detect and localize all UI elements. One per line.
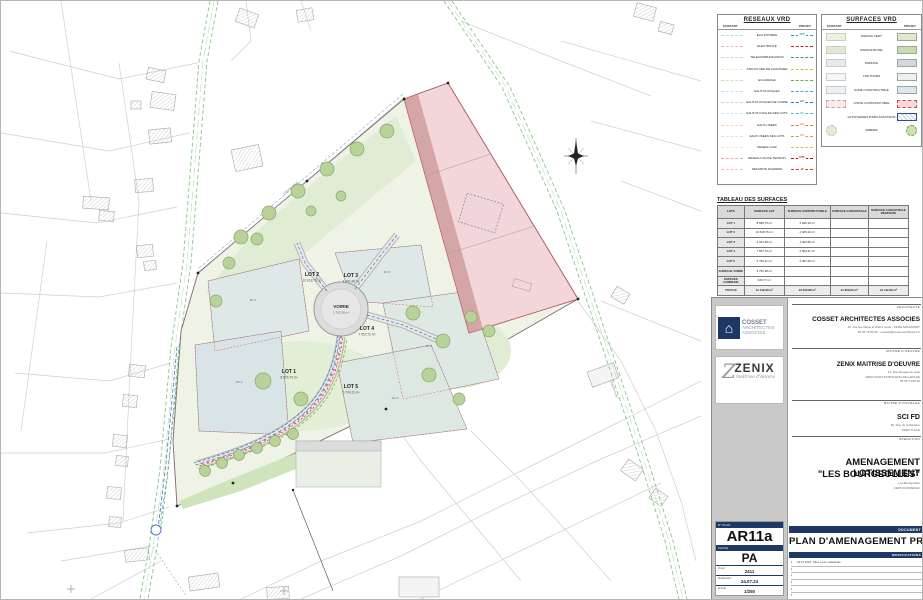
- swatch-projet: [791, 91, 813, 92]
- table-cell: LOT 5: [718, 257, 745, 267]
- table-cell: 646,77 m²: [744, 276, 784, 286]
- moe-contact: 05 55 74 68 40: [791, 379, 920, 383]
- legend-label: EAUX USEES DES LOTS: [743, 135, 791, 138]
- swatch-tag: BI: [800, 169, 805, 172]
- legend-label: EAUX PLUVIALES DES LOTS: [743, 112, 791, 115]
- zone-label: ZC 4: [426, 344, 433, 348]
- operation-address-2: 19270 DONZENAC: [791, 486, 920, 490]
- legend-row: ECLAIRAGE: [718, 75, 816, 86]
- swatch-tag: EP: [799, 101, 804, 104]
- table-cell: [830, 276, 868, 286]
- drawing-sheet: LOT 1 8 595,75 m² LOT 2 10 618,75 m² LOT…: [0, 0, 923, 600]
- swatch-projet: [791, 69, 813, 70]
- lot-area: 5 794,11 m²: [343, 391, 360, 395]
- moa-address-1: 38, Rue de la Barrière: [791, 423, 920, 427]
- table-title: TABLEAU DES SURFACES: [717, 197, 909, 203]
- legend-row: EAUX PLUVIALES DE VOIRIEEP: [718, 97, 816, 108]
- table-header-cell: LOTS: [718, 206, 745, 219]
- moa-name: SCI FD: [791, 414, 920, 421]
- legend-label: EAU POTABLE: [743, 34, 791, 37]
- table-header-cell: SURFACE CADASTRALE RESTANTE: [868, 206, 908, 219]
- table-cell: ESPACES COMMUNS: [718, 276, 745, 286]
- swatch-projet: BI: [791, 169, 813, 170]
- legend-label: ECLAIRAGE: [743, 79, 791, 82]
- table-cell: LOT 1: [718, 219, 745, 229]
- plan-number-block: N° PLAN AR11a PHASE PA Projet2411 Modifi…: [715, 521, 784, 596]
- table-header-cell: SURFACE LOT: [744, 206, 784, 219]
- swatch-projet: [897, 33, 917, 41]
- swatch-projet: [897, 86, 917, 94]
- modification-text: 24.07.2024 : Mise à jour cadastrale: [797, 560, 841, 564]
- section-label-architecte: ARCHITECTE: [897, 305, 920, 309]
- table-header-cell: SURFACE CADASTRALE: [830, 206, 868, 219]
- meta-value: 2411: [716, 566, 783, 574]
- legend-label: PARKING: [846, 62, 897, 65]
- section-label-operation: OPERATION: [899, 437, 920, 441]
- table-cell: [830, 247, 868, 257]
- swatch-existant: [721, 158, 743, 159]
- architecte-contact: 05 55 79 80 30 - contact@cosset-architec…: [791, 330, 920, 334]
- legend-surfaces-vrd: SURFACES VRD EXISTANT PROJET ESPACE VERT…: [821, 14, 922, 147]
- swatch-projet: [791, 147, 813, 148]
- zone-label: ZC 2: [236, 380, 243, 384]
- legend-row: RESEAU HAUTE TENSIONHTA: [718, 153, 816, 164]
- architecte-name: COSSET ARCHITECTES ASSOCIES: [791, 316, 920, 323]
- table-row: LOT 55 794,11 m²2 257,66 m²: [718, 257, 909, 267]
- lot-area: 8 595,75 m²: [280, 376, 297, 380]
- col-projet-label: PROJET: [904, 24, 916, 28]
- col-projet-label: PROJET: [799, 24, 811, 28]
- legend-label: ESPACE BOISE: [846, 49, 897, 52]
- site-plan-drawing: LOT 1 8 595,75 m² LOT 2 10 618,75 m² LOT…: [1, 1, 714, 600]
- operation-title-2: "LES BOURGEOLLES": [791, 468, 920, 479]
- architecte-address: 16, Avenue Marie et Pierre Curie - 19360…: [791, 325, 920, 329]
- section-label-moa: MAITRE D'OUVRAGE: [884, 401, 920, 405]
- swatch-existant: [826, 125, 837, 136]
- table-cell: [830, 219, 868, 229]
- table-cell: LOT 3: [718, 238, 745, 248]
- swatch-projet: [906, 125, 917, 136]
- table-row: SURFACE VOIRIE3 752,38 m²: [718, 266, 909, 276]
- modification-row: ▪: [791, 592, 922, 600]
- swatch-existant: [721, 69, 743, 70]
- lot-area: 4 347,48 m²: [342, 280, 359, 284]
- legend-label: ARBRES: [837, 129, 906, 132]
- swatch-projet: [897, 113, 917, 121]
- table-cell: [784, 266, 830, 276]
- fence-line: [293, 490, 333, 591]
- register-crosses: [67, 585, 288, 595]
- legend-row: LIMITE CONSTRUCTIBLE: [822, 97, 921, 110]
- voirie-area: 3 752,38 m²: [333, 311, 349, 315]
- cosset-logo-line: ASSOCIES: [742, 331, 774, 336]
- table-cell: 2 257,66 m²: [784, 257, 830, 267]
- table-cell: [868, 228, 908, 238]
- legend-row: TELECOMMUNICATION: [718, 52, 816, 63]
- swatch-existant: [721, 169, 743, 170]
- swatch-existant: [826, 73, 846, 81]
- lot-label: LOT 3: [344, 273, 358, 279]
- swatch-existant: [721, 125, 743, 126]
- phase-value: PA: [716, 551, 783, 565]
- legend-label: EAUX PLUVIALES DE VOIRIE: [743, 101, 791, 104]
- legend-row: HYPOTHESES D'IMPLANTATIONS: [822, 110, 921, 123]
- table-cell: 41 412,96 m²: [868, 286, 908, 296]
- table-cell: 5 794,11 m²: [744, 257, 784, 267]
- legend-label: ELECTRICITE: [743, 45, 791, 48]
- legend-reseaux-vrd: RESEAUX VRD EXISTANT PROJET EAU POTABLEA…: [717, 14, 817, 185]
- swatch-existant: [826, 100, 846, 108]
- table-cell: [830, 228, 868, 238]
- meta-label: Echelle: [718, 587, 726, 590]
- table-cell: 12 035,88 m²: [784, 286, 830, 296]
- zenix-logo: Z ZENIX maîtrise d'œuvre: [715, 356, 784, 404]
- swatch-projet: [791, 80, 813, 81]
- table-cell: [868, 276, 908, 286]
- swatch-existant: [721, 35, 743, 36]
- bullet-icon: ▪: [791, 587, 797, 591]
- table-total-row: TOTAUX41 412,96 m²12 035,88 m²41 829,00 …: [718, 286, 909, 296]
- meta-label: Modification: [718, 577, 731, 580]
- legend-label: TROTTOIRS: [846, 75, 897, 78]
- legend-row: ARBRES: [822, 124, 921, 137]
- legend-label: RESEAU HAUTE TENSION: [743, 157, 791, 160]
- table-cell: 4 347,48 m²: [744, 238, 784, 248]
- north-compass-icon: [564, 138, 588, 174]
- legend-row: EAUX PLUVIALES DES LOTSEP: [718, 108, 816, 119]
- lot-label: LOT 4: [360, 326, 374, 332]
- retention-basin: [151, 525, 161, 535]
- table-row: LOT 34 347,48 m²1 363,58 m²: [718, 238, 909, 248]
- legend-row: EAUX USEES DES LOTSEU: [718, 131, 816, 142]
- bullet-icon: ▪: [791, 573, 797, 577]
- table-row: LOT 18 595,75 m²2 936,20 m²: [718, 219, 909, 229]
- bullet-icon: ▪: [791, 567, 797, 571]
- swatch-existant: [721, 80, 743, 81]
- legend-label: TELECOMMUNICATION: [743, 56, 791, 59]
- moe-address-1: 14, Rue Rouget de Lisle: [791, 370, 920, 374]
- table-cell: [868, 266, 908, 276]
- table-cell: LOT 2: [718, 228, 745, 238]
- moe-address-2: 19600 SAINT-PANTALEON-DE-LARCHE: [791, 375, 920, 379]
- legend-label: EAUX USEES: [743, 124, 791, 127]
- table-cell: 1 363,58 m²: [784, 238, 830, 248]
- title-block-info-column: ARCHITECTE COSSET ARCHITECTES ASSOCIES 1…: [789, 298, 923, 599]
- table-row: ESPACES COMMUNS646,77 m²: [718, 276, 909, 286]
- swatch-projet: AEP: [791, 35, 813, 36]
- table-row: LOT 47 657,72 m²2 553,21 m²: [718, 247, 909, 257]
- swatch-existant: [826, 86, 846, 94]
- table-cell: SURFACE VOIRIE: [718, 266, 745, 276]
- swatch-tag: EP: [799, 113, 804, 116]
- lot-area: 7 657,72 m²: [358, 333, 375, 337]
- swatch-projet: [791, 46, 813, 47]
- legend-label: ESPACE VERT: [846, 35, 897, 38]
- legend-label: HYPOTHESES D'IMPLANTATIONS: [846, 116, 897, 119]
- swatch-projet: [897, 100, 917, 108]
- swatch-projet: EP: [791, 113, 813, 114]
- legend-row: ZONE CONSTRUCTIBLE: [822, 84, 921, 97]
- legend-row: EAUX USEESEU: [718, 120, 816, 131]
- moa-address-2: 19000 TULLE: [791, 428, 920, 432]
- document-bar: DOCUMENT: [789, 526, 923, 533]
- legend-row: TROTTOIRS: [822, 70, 921, 83]
- lot-label: LOT 5: [344, 384, 358, 390]
- table-cell: [784, 276, 830, 286]
- swatch-projet: EP: [791, 102, 813, 103]
- legend-title: SURFACES VRD: [822, 15, 921, 24]
- table-cell: 10 618,75 m²: [744, 228, 784, 238]
- zone-label: ZC 3: [384, 270, 391, 274]
- voirie-label: VOIRIE: [333, 304, 349, 309]
- swatch-projet: HTA: [791, 158, 813, 159]
- legend-label: RESEAU GAZ: [743, 146, 791, 149]
- swatch-projet: [897, 46, 917, 54]
- meta-row: Echelle1/250: [716, 585, 783, 595]
- zenix-z-glyph: Z: [722, 359, 736, 383]
- table-cell: 2 553,21 m²: [784, 247, 830, 257]
- swatch-existant: [721, 113, 743, 114]
- legend-row: ESPACE BOISE: [822, 43, 921, 56]
- section-label-moe: MAITRE D'OEUVRE: [886, 349, 920, 353]
- table-cell: 41 412,96 m²: [744, 286, 784, 296]
- legend-label: LIMITE CONSTRUCTIBLE: [846, 102, 897, 105]
- lot-label: LOT 1: [282, 369, 296, 375]
- table-cell: [830, 257, 868, 267]
- swatch-existant: [721, 136, 743, 137]
- surface-table: TABLEAU DES SURFACES LOTS SURFACE LOT SU…: [717, 197, 909, 296]
- table-cell: [868, 219, 908, 229]
- swatch-tag: EU: [799, 124, 805, 127]
- cosset-logo: ⌂ COSSET ARCHITECTES ASSOCIES: [715, 305, 784, 350]
- table-header-row: LOTS SURFACE LOT SURFACE CONSTRUCTIBLE S…: [718, 206, 909, 219]
- table-cell: 8 595,75 m²: [744, 219, 784, 229]
- table-cell: [830, 238, 868, 248]
- meta-row: Projet2411: [716, 565, 783, 575]
- table-row: LOT 210 618,75 m²2 925,23 m²: [718, 228, 909, 238]
- table-cell: [868, 247, 908, 257]
- swatch-existant: [721, 147, 743, 148]
- modifications-bar: MODIFICATIONS: [789, 552, 923, 558]
- table-cell: [830, 266, 868, 276]
- legend-row: STRUCTURE DE CHAUSSEE: [718, 64, 816, 75]
- table-cell: [868, 238, 908, 248]
- legend-row: RESEAU GAZ: [718, 142, 816, 153]
- table-cell: 3 752,38 m²: [744, 266, 784, 276]
- plan-number-value: AR11a: [716, 528, 783, 545]
- zone-label: ZC 1: [250, 298, 257, 302]
- swatch-projet: EU: [791, 136, 813, 137]
- legend-label: SECURITE INCENDIE: [743, 168, 791, 171]
- swatch-projet: [897, 73, 917, 81]
- legend-label: ZONE CONSTRUCTIBLE: [846, 89, 897, 92]
- swatch-projet: EU: [791, 125, 813, 126]
- swatch-existant: [826, 46, 846, 54]
- legend-row: EAUX PLUVIALES: [718, 86, 816, 97]
- legend-row: PARKING: [822, 57, 921, 70]
- table-cell: 2 936,20 m²: [784, 219, 830, 229]
- table-header-cell: SURFACE CONSTRUCTIBLE: [784, 206, 830, 219]
- legend-row: SECURITE INCENDIEBI: [718, 164, 816, 175]
- swatch-existant: [721, 102, 743, 103]
- meta-label: Projet: [718, 567, 725, 570]
- bullet-icon: ▪: [791, 580, 797, 584]
- swatch-tag: HTA: [798, 157, 805, 160]
- document-title: PLAN D'AMENAGEMENT PROJET: [789, 536, 922, 547]
- table-cell: LOT 4: [718, 247, 745, 257]
- swatch-existant: [826, 59, 846, 67]
- swatch-tag: EU: [799, 135, 805, 138]
- legend-label: EAUX PLUVIALES: [743, 90, 791, 93]
- legend-row: EAU POTABLEAEP: [718, 30, 816, 41]
- table-cell: 7 657,72 m²: [744, 247, 784, 257]
- moe-name: ZENIX MAITRISE D'OEUVRE: [791, 361, 920, 368]
- swatch-projet: [897, 59, 917, 67]
- swatch-existant: [721, 57, 743, 58]
- table-cell: 2 925,23 m²: [784, 228, 830, 238]
- table-cell: TOTAUX: [718, 286, 745, 296]
- swatch-tag: AEP: [798, 34, 805, 37]
- col-existant-label: EXISTANT: [723, 24, 738, 28]
- zenix-logo-subtitle: maîtrise d'œuvre: [728, 375, 783, 380]
- table-cell: [868, 257, 908, 267]
- swatch-existant: [826, 33, 846, 41]
- lot-label: LOT 2: [305, 272, 319, 278]
- table-cell: 41 829,00 m²: [830, 286, 868, 296]
- road-name-label: Chemin rural: [609, 379, 619, 398]
- swatch-existant: [721, 46, 743, 47]
- swatch-projet: [791, 57, 813, 58]
- legend-row: ESPACE VERT: [822, 30, 921, 43]
- house-icon: ⌂: [718, 317, 740, 339]
- lot-area: 10 618,75 m²: [303, 279, 322, 283]
- bullet-icon: ▪: [791, 593, 797, 597]
- legend-row: ELECTRICITE: [718, 41, 816, 52]
- legend-title: RESEAUX VRD: [718, 15, 816, 24]
- col-existant-label: EXISTANT: [827, 24, 842, 28]
- meta-row: Modification24.07.24: [716, 575, 783, 585]
- title-block: ⌂ COSSET ARCHITECTES ASSOCIES Z ZENIX ma…: [711, 297, 923, 600]
- operation-address-1: Les Bourgeolles: [791, 481, 920, 485]
- title-block-logo-column: ⌂ COSSET ARCHITECTES ASSOCIES Z ZENIX ma…: [712, 298, 788, 599]
- legend-label: STRUCTURE DE CHAUSSEE: [743, 68, 791, 71]
- swatch-existant: [721, 91, 743, 92]
- zone-label: ZC 5: [392, 396, 399, 400]
